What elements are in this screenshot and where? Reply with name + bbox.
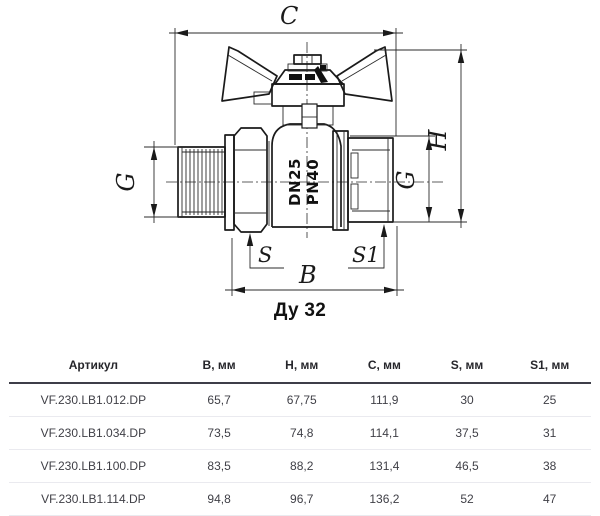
cell-h: 67,75 (260, 383, 343, 417)
cell-h: 96,7 (260, 483, 343, 516)
cell-s: 30 (426, 383, 509, 417)
cell-b: 73,5 (178, 417, 261, 450)
body-marking-dn: DN25 (286, 158, 304, 206)
column-header-h: H, мм (260, 346, 343, 383)
table-row: VF.230.LB1.034.DP 73,5 74,8 114,1 37,5 3… (9, 417, 591, 450)
female-thread-end (348, 138, 393, 222)
cell-c: 136,2 (343, 483, 426, 516)
dimension-label-g-left: G (112, 172, 140, 191)
cell-s: 52 (426, 483, 509, 516)
drawing-title: Ду 32 (0, 300, 600, 322)
cell-c: 111,9 (343, 383, 426, 417)
dimension-label-c: C (280, 2, 298, 30)
column-header-c: C, мм (343, 346, 426, 383)
dimension-label-g-right: G (392, 170, 420, 189)
bonnet-and-stem (254, 55, 344, 128)
table-row: VF.230.LB1.100.DP 83,5 88,2 131,4 46,5 3… (9, 450, 591, 483)
cell-s: 46,5 (426, 450, 509, 483)
spec-table-header-row: Артикул B, мм H, мм C, мм S, мм S1, мм (9, 346, 591, 383)
dimension-label-s: S (258, 243, 272, 267)
cell-b: 65,7 (178, 383, 261, 417)
cell-s1: 25 (508, 383, 591, 417)
cell-article: VF.230.LB1.034.DP (9, 417, 178, 450)
column-header-s1: S1, мм (508, 346, 591, 383)
cell-s1: 31 (508, 417, 591, 450)
table-row: VF.230.LB1.114.DP 94,8 96,7 136,2 52 47 (9, 483, 591, 516)
cell-h: 74,8 (260, 417, 343, 450)
cell-h: 88,2 (260, 450, 343, 483)
cell-b: 83,5 (178, 450, 261, 483)
cell-s: 37,5 (426, 417, 509, 450)
cell-article: VF.230.LB1.100.DP (9, 450, 178, 483)
cell-article: VF.230.LB1.114.DP (9, 483, 178, 516)
valve-technical-drawing: PN40 DN25 C H G G S (0, 0, 600, 298)
column-header-b: B, мм (178, 346, 261, 383)
union-nut-left (225, 128, 269, 232)
spec-table: Артикул B, мм H, мм C, мм S, мм S1, мм V… (9, 346, 591, 516)
column-header-article: Артикул (9, 346, 178, 383)
body-marking-pn: PN40 (304, 159, 322, 205)
cell-article: VF.230.LB1.012.DP (9, 383, 178, 417)
cell-c: 114,1 (343, 417, 426, 450)
cell-c: 131,4 (343, 450, 426, 483)
dimension-c (169, 28, 403, 145)
dimension-label-b: B (298, 261, 317, 289)
dimension-label-s1: S1 (352, 243, 380, 267)
column-header-s: S, мм (426, 346, 509, 383)
valve-drawing-svg: PN40 DN25 C H G G S (0, 0, 600, 298)
cell-s1: 47 (508, 483, 591, 516)
table-row: VF.230.LB1.012.DP 65,7 67,75 111,9 30 25 (9, 383, 591, 417)
cell-s1: 38 (508, 450, 591, 483)
cell-b: 94,8 (178, 483, 261, 516)
